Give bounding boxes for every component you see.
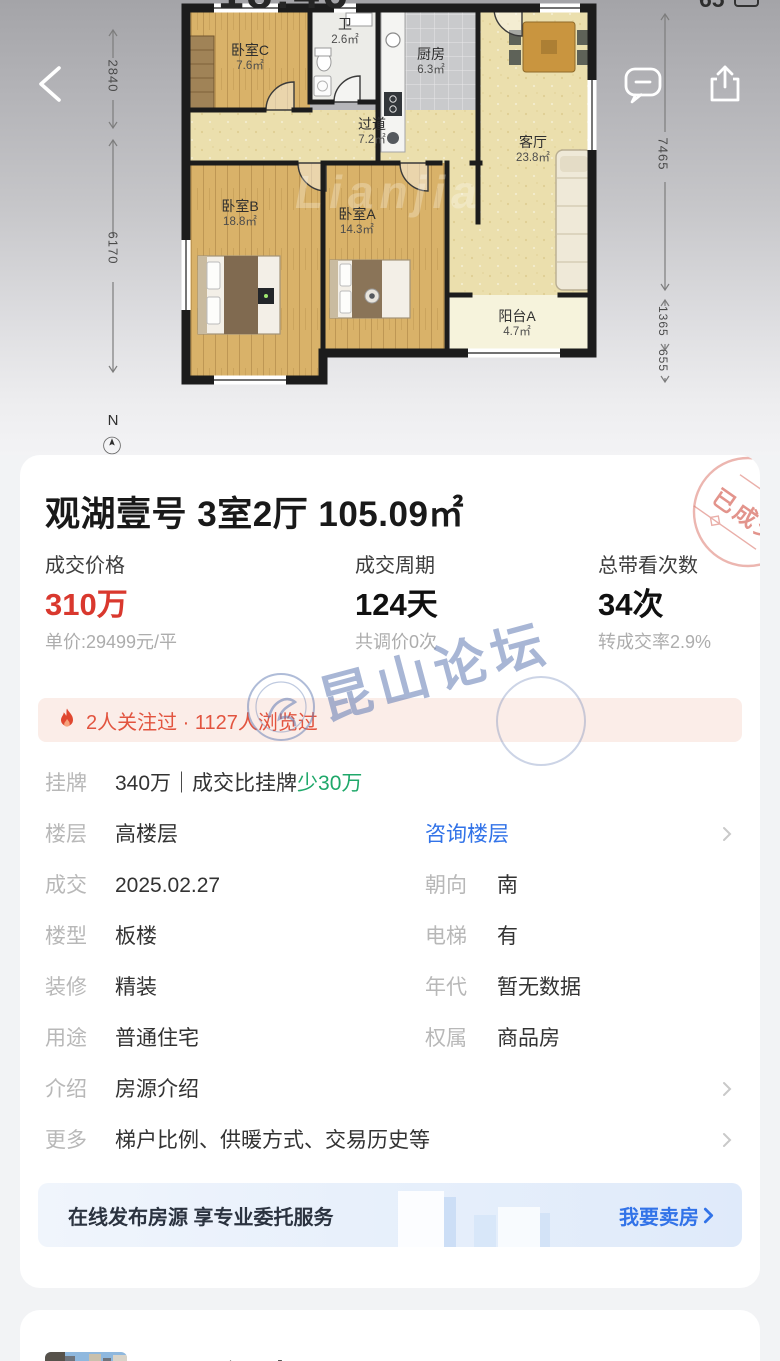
room-name: 过道 xyxy=(358,116,386,133)
compass-icon xyxy=(95,436,129,455)
battery-icon xyxy=(734,0,759,7)
row-value-2: 南 xyxy=(497,860,518,911)
row-value: 2025.02.27 xyxy=(115,860,220,911)
hot-banner-text: 2人关注过 · 1127人浏览过 xyxy=(86,706,318,735)
row-label: 介绍 xyxy=(45,1064,87,1115)
room-name: 厨房 xyxy=(417,46,445,63)
room-label-bedroom-c: 卧室C7.6㎡ xyxy=(231,42,269,73)
feedback-button[interactable] xyxy=(620,62,666,108)
room-area: 2.6㎡ xyxy=(331,33,359,47)
row-label-2: 朝向 xyxy=(425,860,467,911)
dimension-right-middle: 1365 xyxy=(656,306,670,342)
room-area: 7.2㎡ xyxy=(358,133,386,147)
north-label: N xyxy=(104,412,122,429)
flame-icon xyxy=(58,708,76,732)
share-icon xyxy=(704,63,746,105)
row-label: 楼型 xyxy=(45,911,87,962)
row-floor[interactable]: 楼层 高楼层 咨询楼层 xyxy=(20,809,760,860)
sell-banner-text: 在线发布房源 享专业委托服务 xyxy=(68,1201,334,1230)
stat-label: 成交价格 xyxy=(45,553,177,579)
dimension-right-top: 7465 xyxy=(656,138,671,176)
room-area: 23.8㎡ xyxy=(516,151,550,165)
status-time: 18:46 xyxy=(218,0,351,12)
row-value: 340万｜成交比挂牌 xyxy=(115,758,297,809)
back-button[interactable] xyxy=(28,60,72,110)
ask-floor-link[interactable]: 咨询楼层 xyxy=(425,809,509,860)
room-area: 7.6㎡ xyxy=(231,59,269,73)
detail-rows: 挂牌 340万｜成交比挂牌 少30万 楼层 高楼层 咨询楼层 成交 2025.0… xyxy=(20,758,760,1166)
stat-sub: 转成交率2.9% xyxy=(598,631,711,654)
chevron-right-icon xyxy=(722,1132,732,1148)
room-name: 卧室A xyxy=(338,206,375,223)
chevron-right-icon xyxy=(722,826,732,842)
comment-bubble-icon xyxy=(622,63,664,105)
row-label: 用途 xyxy=(45,1013,87,1064)
row-more[interactable]: 更多 梯户比例、供暖方式、交易历史等 xyxy=(20,1115,760,1166)
dimension-right-bottom: 655 xyxy=(656,349,670,377)
room-area: 14.3㎡ xyxy=(338,223,375,237)
room-area: 18.8㎡ xyxy=(221,215,258,229)
listing-card: 已成交 观湖壹号 3室2厅 105.09㎡ 成交价格 310万 单价:29499… xyxy=(20,455,760,1288)
sell-house-label: 我要卖房 xyxy=(619,1201,699,1230)
stat-value: 34次 xyxy=(598,586,711,624)
row-value: 高楼层 xyxy=(115,809,178,860)
room-label-kitchen: 厨房6.3㎡ xyxy=(417,46,445,77)
sold-stamp-label: 已成交 xyxy=(691,468,760,562)
stat-deal-cycle: 成交周期 124天 共调价0次 xyxy=(355,553,438,654)
page-title: 观湖壹号 3室2厅 105.09㎡ xyxy=(45,486,464,537)
row-introduction[interactable]: 介绍 房源介绍 xyxy=(20,1064,760,1115)
row-value: 精装 xyxy=(115,962,157,1013)
room-label-balcony: 阳台A4.7㎡ xyxy=(498,308,535,339)
room-label-bedroom-b: 卧室B18.8㎡ xyxy=(221,198,258,229)
next-listing-card[interactable]: 观湖壹号 xyxy=(20,1310,760,1361)
row-value-group: 340万｜成交比挂牌 少30万 xyxy=(115,758,362,809)
room-name: 阳台A xyxy=(498,308,535,325)
buildings-illustration-icon xyxy=(378,1183,598,1247)
stat-sold-price: 成交价格 310万 单价:29499元/平 xyxy=(45,553,177,654)
row-value-2: 有 xyxy=(497,911,518,962)
status-bar: 18:46 65 xyxy=(0,0,780,12)
row-label: 挂牌 xyxy=(45,758,87,809)
stat-sub: 单价:29499元/平 xyxy=(45,631,177,654)
row-deal-date: 成交 2025.02.27 朝向 南 xyxy=(20,860,760,911)
back-arrow-icon xyxy=(33,62,67,106)
row-value: 梯户比例、供暖方式、交易历史等 xyxy=(115,1115,430,1166)
row-label: 楼层 xyxy=(45,809,87,860)
room-label-hallway: 过道7.2㎡ xyxy=(358,116,386,147)
stat-total-views: 总带看次数 34次 转成交率2.9% xyxy=(598,553,711,654)
room-area: 6.3㎡ xyxy=(417,63,445,77)
battery-percent: 65 xyxy=(699,0,725,12)
stat-sub: 共调价0次 xyxy=(355,631,438,654)
chevron-right-icon xyxy=(722,1081,732,1097)
row-listed-price: 挂牌 340万｜成交比挂牌 少30万 xyxy=(20,758,760,809)
stat-value: 310万 xyxy=(45,586,177,624)
row-label-2: 电梯 xyxy=(425,911,467,962)
stat-value: 124天 xyxy=(355,586,438,624)
room-name: 卧室B xyxy=(221,198,258,215)
row-value-2: 商品房 xyxy=(497,1013,560,1064)
row-label: 更多 xyxy=(45,1115,87,1166)
row-value: 房源介绍 xyxy=(115,1064,199,1115)
row-building-type: 楼型 板楼 电梯 有 xyxy=(20,911,760,962)
room-name: 客厅 xyxy=(516,134,550,151)
row-label: 成交 xyxy=(45,860,87,911)
hot-banner: 2人关注过 · 1127人浏览过 xyxy=(38,698,742,742)
chevron-right-icon xyxy=(703,1207,714,1224)
sell-house-banner[interactable]: 在线发布房源 享专业委托服务 我要卖房 xyxy=(38,1183,742,1247)
room-label-bedroom-a: 卧室A14.3㎡ xyxy=(338,206,375,237)
row-label: 装修 xyxy=(45,962,87,1013)
listing-thumbnail xyxy=(45,1352,127,1361)
room-area: 4.7㎡ xyxy=(498,325,535,339)
next-listing-title: 观湖壹号 xyxy=(190,1350,334,1361)
room-name: 卧室C xyxy=(231,42,269,59)
room-name: 卫 xyxy=(331,16,359,33)
room-label-bath: 卫2.6㎡ xyxy=(331,16,359,47)
share-button[interactable] xyxy=(702,62,748,108)
row-label-2: 年代 xyxy=(425,962,467,1013)
floor-plan-viewer[interactable]: 卧室C7.6㎡ 卫2.6㎡ 厨房6.3㎡ 过道7.2㎡ 客厅23.8㎡ 卧室B1… xyxy=(0,0,780,455)
stat-label: 成交周期 xyxy=(355,553,438,579)
room-label-living: 客厅23.8㎡ xyxy=(516,134,550,165)
row-value-2: 暂无数据 xyxy=(497,962,581,1013)
row-decoration: 装修 精装 年代 暂无数据 xyxy=(20,962,760,1013)
row-value: 板楼 xyxy=(115,911,157,962)
row-value: 普通住宅 xyxy=(115,1013,199,1064)
sell-house-button[interactable]: 我要卖房 xyxy=(619,1201,714,1230)
dimension-left-bottom: 6170 xyxy=(106,232,121,270)
row-label-2: 权属 xyxy=(425,1013,467,1064)
row-usage: 用途 普通住宅 权属 商品房 xyxy=(20,1013,760,1064)
stat-label: 总带看次数 xyxy=(598,553,711,579)
dimension-left-top: 2840 xyxy=(106,60,121,98)
thumbnail-photo xyxy=(45,1352,127,1361)
screen: 卧室C7.6㎡ 卫2.6㎡ 厨房6.3㎡ 过道7.2㎡ 客厅23.8㎡ 卧室B1… xyxy=(0,0,780,1361)
row-value-highlight: 少30万 xyxy=(297,758,362,809)
